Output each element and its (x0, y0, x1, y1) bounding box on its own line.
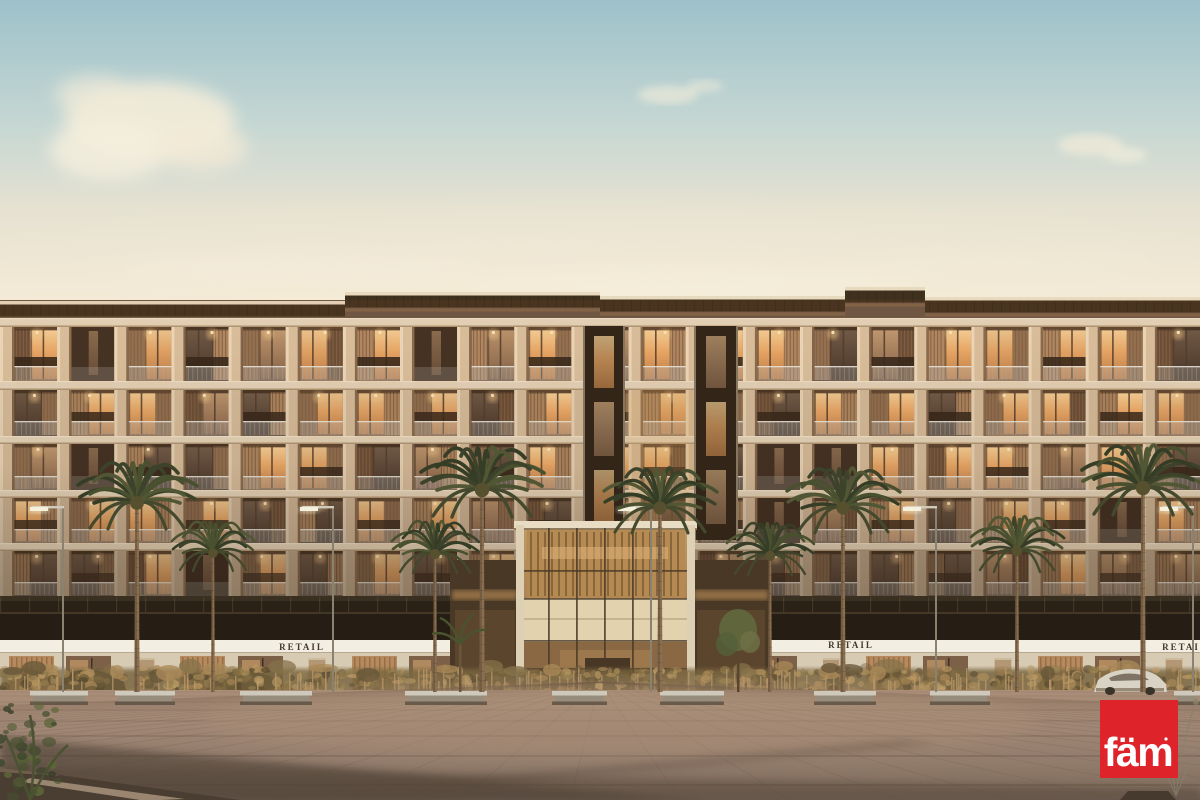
svg-text:fäm: fäm (1104, 729, 1172, 775)
svg-text:RETAIL: RETAIL (1162, 642, 1200, 652)
svg-text:RETAIL: RETAIL (279, 642, 325, 652)
svg-text:RETAIL: RETAIL (828, 640, 874, 650)
